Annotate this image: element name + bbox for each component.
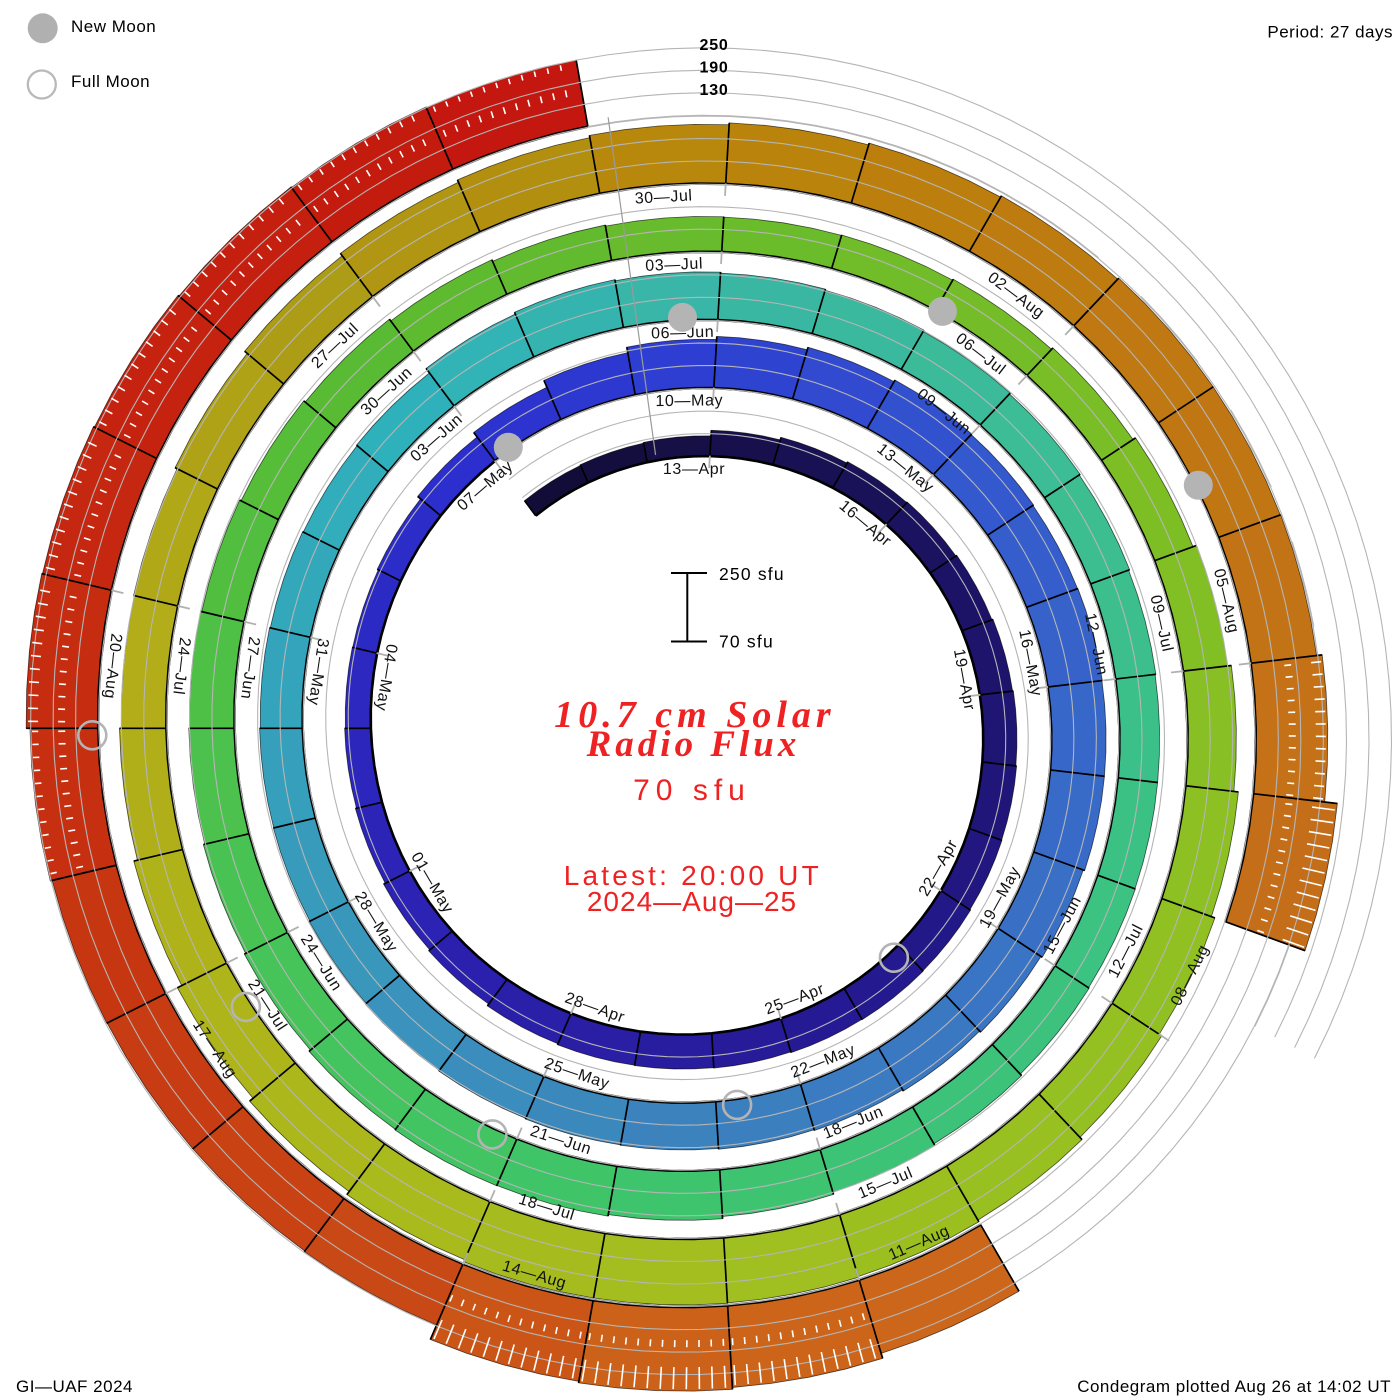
svg-text:70 sfu: 70 sfu (719, 632, 774, 652)
svg-text:Radio Flux: Radio Flux (586, 724, 801, 765)
svg-text:10—May: 10—May (655, 392, 723, 410)
svg-text:190: 190 (700, 59, 729, 76)
svg-text:130: 130 (700, 82, 729, 99)
svg-text:250 sfu: 250 sfu (719, 564, 785, 584)
svg-text:GI—UAF 2024: GI—UAF 2024 (16, 1377, 133, 1396)
svg-text:03—Jul: 03—Jul (645, 255, 704, 274)
svg-text:2024—Aug—25: 2024—Aug—25 (587, 886, 797, 917)
svg-text:250: 250 (700, 37, 729, 54)
svg-text:70 sfu: 70 sfu (633, 774, 751, 807)
svg-text:30—Jul: 30—Jul (634, 187, 693, 207)
svg-text:Full Moon: Full Moon (71, 72, 150, 91)
svg-text:New Moon: New Moon (71, 17, 156, 36)
svg-text:Period: 27 days: Period: 27 days (1267, 23, 1393, 42)
svg-text:13—Apr: 13—Apr (663, 461, 725, 478)
svg-text:Condegram plotted Aug 26 at 14: Condegram plotted Aug 26 at 14:02 UT (1077, 1377, 1391, 1396)
